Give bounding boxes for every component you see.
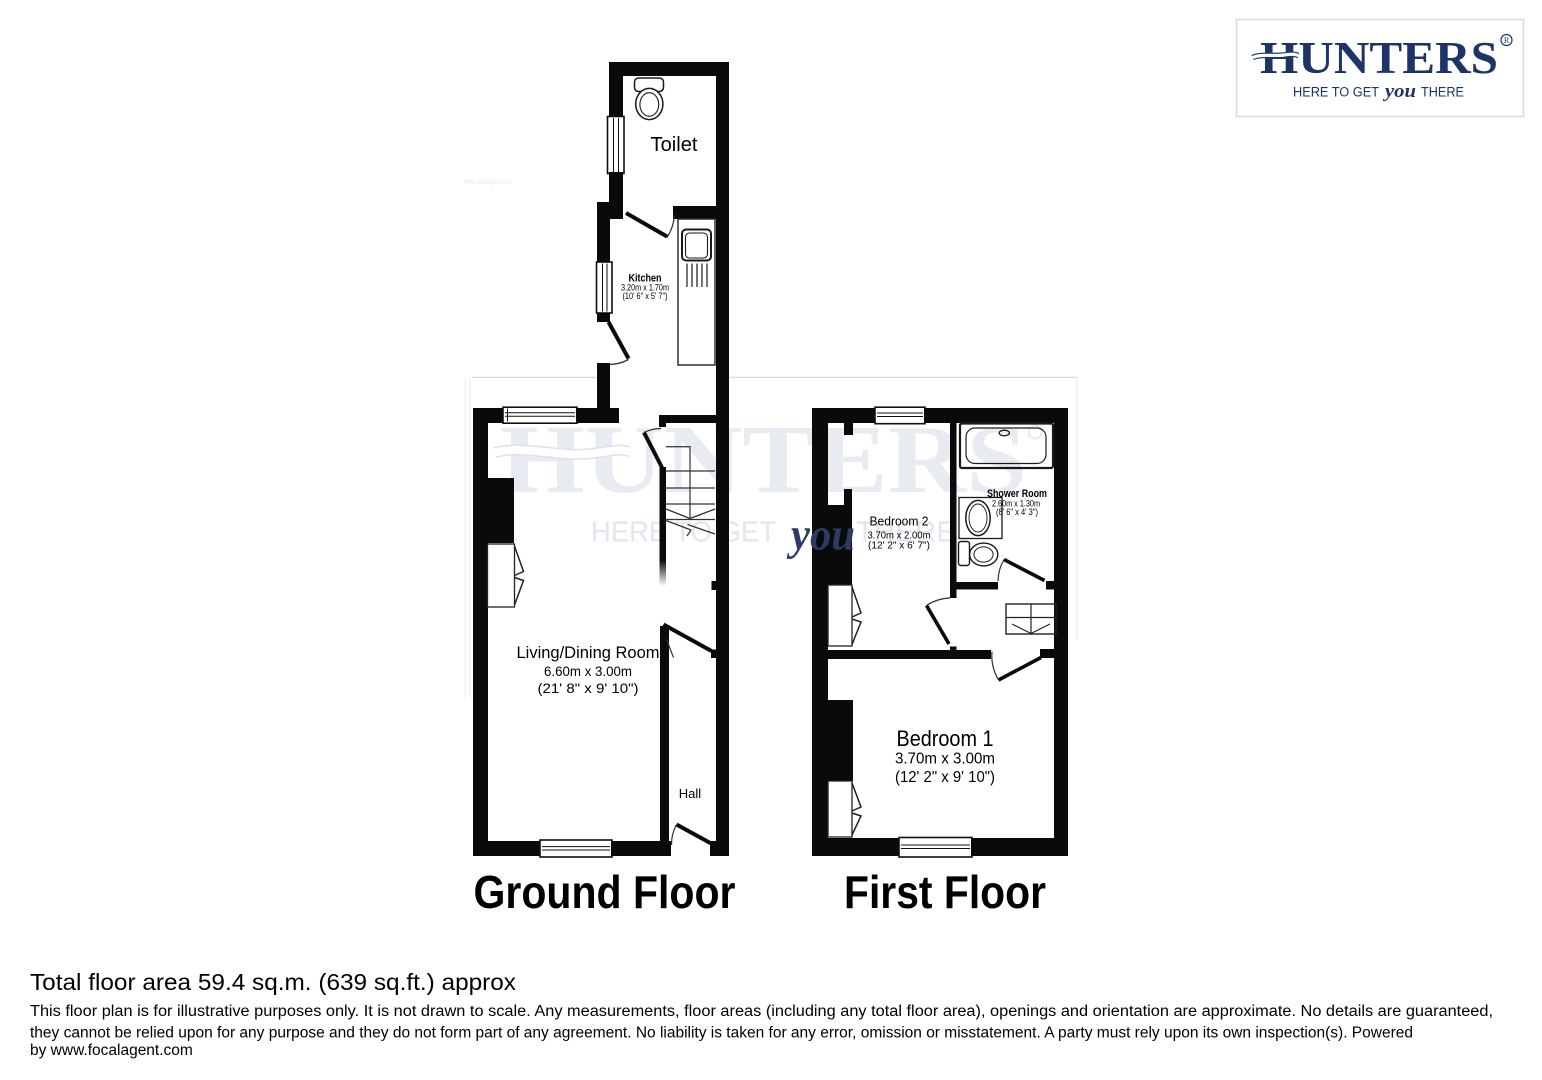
svg-text:Living/Dining Room: Living/Dining Room — [517, 643, 660, 662]
svg-text:(21' 8" x 9' 10"): (21' 8" x 9' 10") — [538, 680, 639, 696]
svg-text:(8' 6" x 4' 3"): (8' 6" x 4' 3") — [996, 507, 1038, 518]
svg-text:3.70m x 3.00m: 3.70m x 3.00m — [895, 751, 995, 768]
svg-text:Toilet: Toilet — [651, 134, 698, 156]
svg-text:Bedroom 1: Bedroom 1 — [897, 726, 994, 751]
svg-text:6.60m x 3.00m: 6.60m x 3.00m — [544, 663, 632, 679]
svg-text:by www.focalagent.com: by www.focalagent.com — [30, 1042, 193, 1059]
svg-text:THERE: THERE — [1421, 85, 1464, 100]
svg-text:Hall: Hall — [679, 786, 702, 801]
svg-text:Total floor area 59.4 sq.m. (6: Total floor area 59.4 sq.m. (639 sq.ft.)… — [30, 969, 517, 995]
svg-text:HERE TO GET: HERE TO GET — [1293, 85, 1379, 100]
svg-text:you: you — [786, 509, 855, 560]
svg-text:First Floor: First Floor — [844, 866, 1046, 918]
svg-text:R: R — [1504, 36, 1510, 45]
svg-text:(12' 2" x 6' 7"): (12' 2" x 6' 7") — [868, 540, 930, 552]
svg-text:Bedroom 2: Bedroom 2 — [870, 515, 929, 529]
svg-text:they cannot be relied upon for: they cannot be relied upon for any purpo… — [30, 1025, 1413, 1042]
svg-text:(10' 6" x 5' 7"): (10' 6" x 5' 7") — [623, 291, 668, 302]
svg-text:HERE TO GET: HERE TO GET — [591, 517, 776, 549]
svg-text:(12' 2" x 9' 10"): (12' 2" x 9' 10") — [895, 769, 995, 786]
svg-text:This floor plan is for illustr: This floor plan is for illustrative purp… — [30, 1003, 1493, 1020]
svg-text:you: you — [1383, 81, 1416, 102]
svg-text:Ground Floor: Ground Floor — [474, 866, 736, 918]
svg-text:www.focalagent.com: www.focalagent.com — [463, 177, 512, 186]
